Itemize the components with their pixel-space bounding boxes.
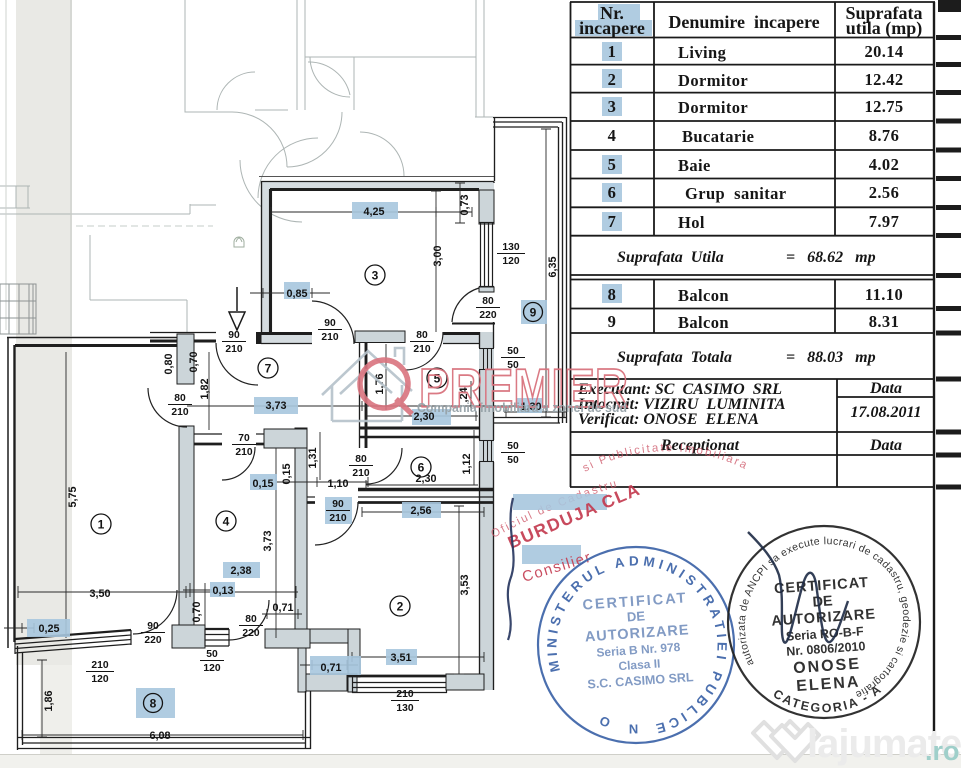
svg-text:210: 210: [413, 344, 430, 355]
svg-text:Compania imobiliara a zonei de: Compania imobiliara a zonei de sud: [417, 400, 627, 415]
svg-text:80: 80: [245, 614, 257, 625]
svg-text:50: 50: [206, 649, 218, 660]
svg-text:3,73: 3,73: [262, 530, 274, 551]
svg-text:70: 70: [238, 433, 250, 444]
svg-text:1,31: 1,31: [307, 447, 319, 468]
svg-text:17.08.2011: 17.08.2011: [850, 404, 921, 421]
svg-text:12.75: 12.75: [864, 97, 903, 116]
svg-text:5: 5: [608, 155, 617, 174]
svg-text:6: 6: [418, 461, 425, 475]
svg-text:90: 90: [228, 330, 240, 341]
svg-text:6,08: 6,08: [149, 730, 170, 742]
svg-text:50: 50: [507, 441, 519, 452]
svg-text:4: 4: [608, 126, 617, 145]
svg-text:0,15: 0,15: [252, 478, 273, 490]
svg-text:3,73: 3,73: [265, 400, 286, 412]
svg-text:0,25: 0,25: [38, 623, 59, 635]
svg-text:130: 130: [396, 703, 413, 714]
svg-text:0,15: 0,15: [281, 463, 293, 484]
svg-text:8.31: 8.31: [869, 312, 899, 331]
svg-text:1,10: 1,10: [327, 478, 348, 490]
svg-text:Data: Data: [869, 437, 902, 454]
svg-text:Hol: Hol: [678, 213, 705, 232]
svg-text:0,71: 0,71: [320, 662, 341, 674]
svg-text:11.10: 11.10: [865, 285, 903, 304]
svg-text:3,53: 3,53: [459, 574, 471, 595]
svg-text:7.97: 7.97: [869, 212, 899, 231]
svg-text:220: 220: [144, 635, 161, 646]
svg-text:130: 130: [502, 242, 519, 253]
svg-text:120: 120: [502, 256, 519, 267]
svg-text:2: 2: [397, 600, 404, 614]
svg-text:1,12: 1,12: [461, 453, 473, 474]
svg-text:7: 7: [265, 362, 272, 376]
svg-text:utila (mp): utila (mp): [846, 18, 923, 39]
svg-text:1,86: 1,86: [43, 690, 55, 711]
svg-text:210: 210: [352, 468, 369, 479]
svg-text:90: 90: [147, 621, 159, 632]
svg-text:Baie: Baie: [678, 156, 711, 175]
svg-text:DE: DE: [626, 608, 645, 624]
svg-text:2.56: 2.56: [869, 183, 899, 202]
svg-text:20.14: 20.14: [864, 42, 903, 61]
svg-text:Dormitor: Dormitor: [678, 98, 748, 117]
svg-text:Dormitor: Dormitor: [678, 71, 748, 90]
svg-text:210: 210: [171, 407, 188, 418]
svg-text:120: 120: [91, 674, 108, 685]
svg-text:incapere: incapere: [579, 18, 645, 38]
svg-text:4,25: 4,25: [363, 206, 384, 218]
svg-text:3: 3: [608, 97, 617, 116]
svg-text:12.42: 12.42: [864, 70, 903, 89]
svg-text:2,56: 2,56: [410, 505, 431, 517]
svg-text:Grup sanitar: Grup sanitar: [685, 184, 786, 203]
svg-text:Balcon: Balcon: [678, 286, 729, 305]
svg-text:3: 3: [372, 269, 379, 283]
svg-text:210: 210: [396, 689, 413, 700]
svg-text:2: 2: [608, 70, 617, 89]
svg-text:0,70: 0,70: [191, 601, 203, 622]
svg-text:210: 210: [329, 513, 346, 524]
svg-text:Suprafata Utila: Suprafata Utila: [617, 249, 724, 266]
svg-text:9: 9: [530, 306, 537, 320]
svg-text:80: 80: [174, 393, 186, 404]
svg-text:80: 80: [482, 296, 494, 307]
svg-text:1,82: 1,82: [199, 378, 211, 399]
svg-text:210: 210: [321, 332, 338, 343]
svg-text:80: 80: [355, 454, 367, 465]
svg-text:Balcon: Balcon: [678, 313, 729, 332]
svg-text:90: 90: [332, 499, 344, 510]
svg-text:0,85: 0,85: [286, 288, 307, 300]
svg-text:9: 9: [608, 312, 617, 331]
svg-text:3,00: 3,00: [432, 245, 444, 266]
svg-text:2,38: 2,38: [230, 565, 251, 577]
svg-text:220: 220: [479, 310, 496, 321]
svg-text:Living: Living: [678, 43, 727, 62]
svg-text:Data: Data: [869, 380, 902, 397]
svg-text:DE: DE: [812, 593, 834, 610]
svg-text:50: 50: [507, 455, 519, 466]
svg-text:2,30: 2,30: [415, 473, 436, 485]
svg-text:8: 8: [608, 285, 617, 304]
svg-text:5,75: 5,75: [67, 486, 79, 507]
svg-text:= 68.62 mp: = 68.62 mp: [786, 249, 876, 266]
svg-text:.ro: .ro: [925, 736, 960, 766]
svg-text:3,51: 3,51: [390, 652, 411, 664]
svg-text:0,13: 0,13: [212, 585, 233, 597]
svg-text:90: 90: [324, 318, 336, 329]
svg-text:7: 7: [608, 212, 617, 231]
svg-text:4: 4: [223, 515, 230, 529]
svg-text:8.76: 8.76: [869, 126, 899, 145]
svg-text:0,71: 0,71: [272, 602, 293, 614]
svg-text:6,35: 6,35: [547, 256, 559, 277]
svg-text:1: 1: [98, 518, 105, 532]
svg-text:50: 50: [507, 346, 519, 357]
svg-text:6: 6: [608, 183, 617, 202]
svg-text:0,70: 0,70: [188, 351, 200, 372]
svg-text:Suprafata Totala: Suprafata Totala: [617, 349, 732, 366]
svg-text:Clasa II: Clasa II: [618, 656, 661, 673]
svg-text:0,73: 0,73: [459, 194, 471, 215]
svg-text:= 88.03 mp: = 88.03 mp: [786, 349, 876, 366]
svg-text:220: 220: [242, 628, 259, 639]
svg-text:210: 210: [235, 447, 252, 458]
svg-text:1: 1: [608, 42, 617, 61]
svg-text:4.02: 4.02: [869, 155, 899, 174]
svg-text:Bucatarie: Bucatarie: [682, 127, 754, 146]
svg-text:0,80: 0,80: [163, 353, 175, 374]
svg-text:80: 80: [416, 330, 428, 341]
svg-text:3,50: 3,50: [89, 588, 110, 600]
svg-text:8: 8: [150, 697, 157, 711]
svg-text:120: 120: [203, 663, 220, 674]
svg-text:Denumire incapere: Denumire incapere: [668, 12, 819, 32]
svg-text:210: 210: [91, 660, 108, 671]
svg-text:210: 210: [225, 344, 242, 355]
